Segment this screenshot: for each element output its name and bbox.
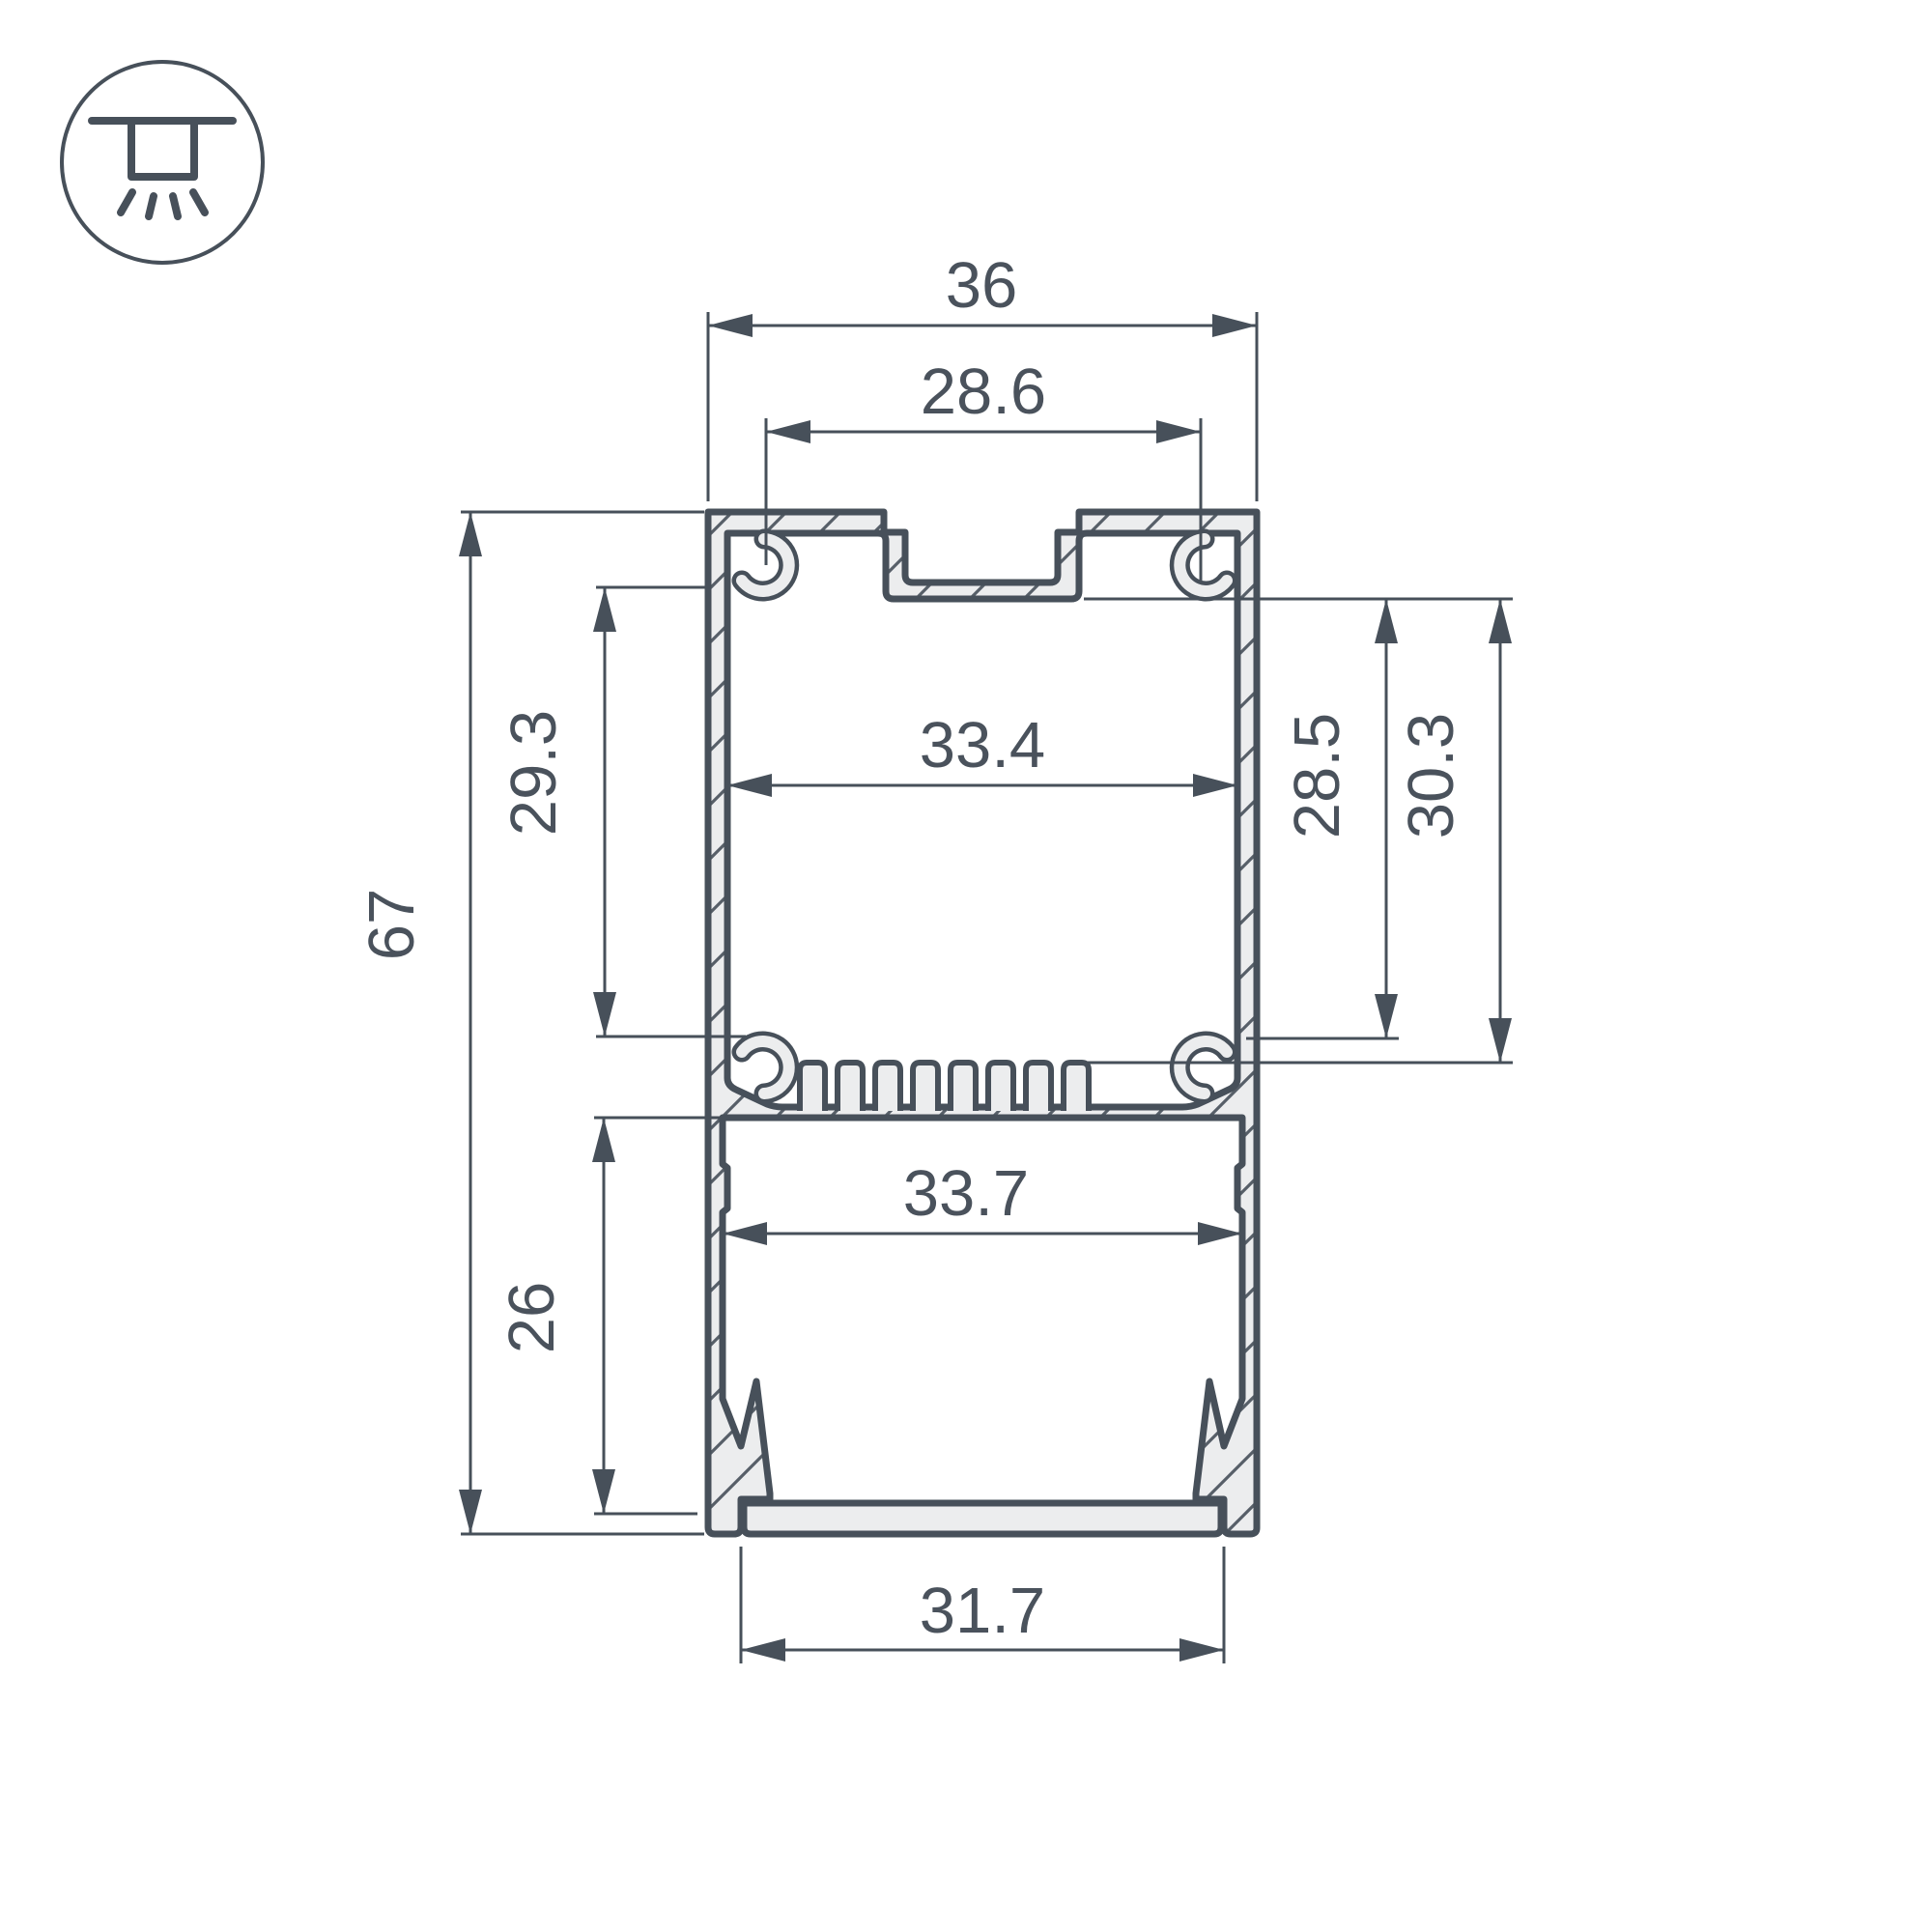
dimension-label: 33.7	[903, 1157, 1029, 1230]
dimension-label: 28.6	[921, 355, 1046, 428]
dimension-label: 36	[946, 249, 1018, 322]
dimension-label: 67	[355, 889, 428, 961]
dimension-label: 28.5	[1281, 713, 1353, 838]
dim-mount-slot-width: 28.6	[766, 355, 1201, 581]
diffuser-plate	[744, 1503, 1221, 1534]
icon-light-rays	[121, 192, 205, 216]
dim-right-inner-height: 28.5	[1246, 599, 1399, 1038]
icon-circle	[62, 62, 263, 263]
screw-bosses	[742, 539, 1227, 1094]
dimension-label: 26	[496, 1282, 568, 1354]
profile-dimension-drawing: 36 28.6 33.4 29.3 67 26 28.5 30.3	[0, 0, 1932, 1932]
drawing-page: 36 28.6 33.4 29.3 67 26 28.5 30.3	[0, 0, 1932, 1932]
dim-lower-inner-height: 26	[496, 1118, 724, 1514]
icon-fixture-box	[131, 121, 194, 177]
dimension-label: 33.4	[920, 709, 1045, 781]
dim-total-height: 67	[355, 512, 704, 1534]
aluminum-profile-section	[708, 512, 1257, 1534]
dimension-label: 31.7	[920, 1575, 1045, 1647]
dimension-label: 29.3	[497, 710, 570, 836]
dimension-label: 30.3	[1395, 713, 1467, 838]
dim-bottom-opening-width: 31.7	[741, 1547, 1224, 1663]
dim-lower-inner-width: 33.7	[723, 1157, 1242, 1234]
recessed-ceiling-light-icon	[62, 62, 263, 263]
dim-upper-inner-width: 33.4	[727, 709, 1237, 785]
